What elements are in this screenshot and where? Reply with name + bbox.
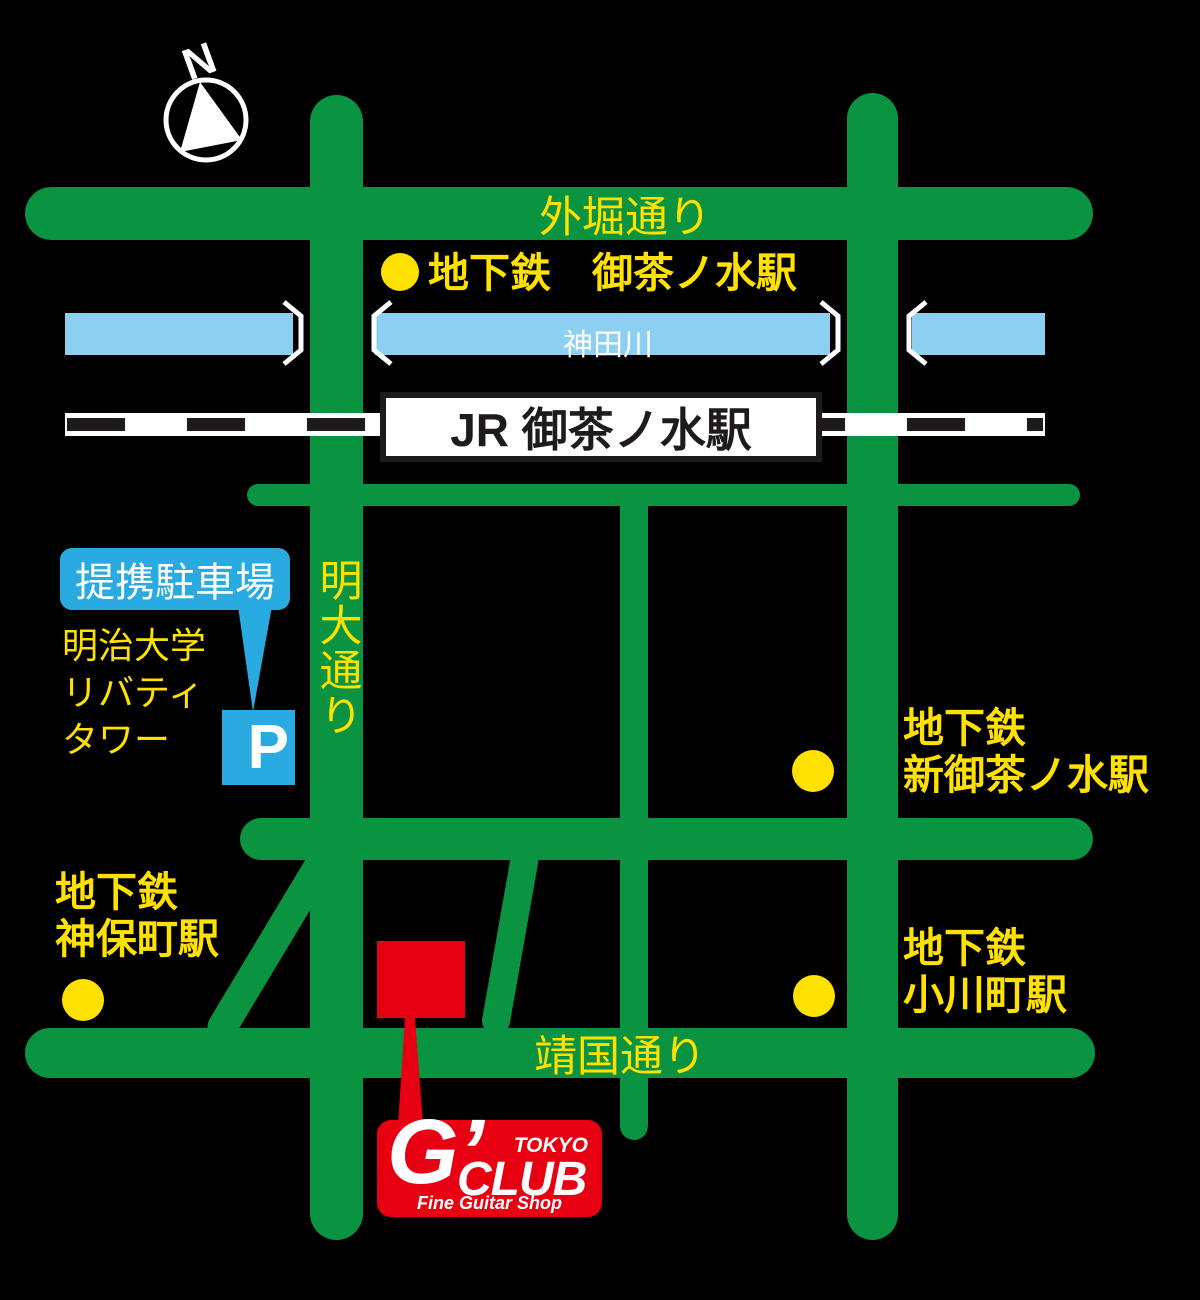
metro-ochanomizu-dot (381, 253, 419, 291)
road-diagonal-middle (480, 835, 542, 1037)
metro-ogawamachi-dot (793, 975, 835, 1017)
gclub-logo: G’ TOKYO CLUB Fine Guitar Shop (377, 1120, 602, 1217)
station-line: 新御茶ノ水駅 (903, 752, 1149, 799)
station-line: 地下鉄 (55, 869, 219, 916)
building-line: リバティ (62, 669, 206, 716)
jr-ochanomizu-station-box: JR 御茶ノ水駅 (380, 392, 822, 462)
kanda-river-segment-left (65, 313, 293, 355)
sotobori-dori-label: 外堀通り (450, 187, 800, 240)
metro-ogawamachi-label: 地下鉄 小川町駅 (903, 925, 1067, 1019)
station-line: 地下鉄 (903, 925, 1067, 972)
kanda-river-label: 神田川 (563, 320, 653, 364)
building-line: 明治大学 (62, 622, 206, 669)
kanda-river-segment-right (912, 313, 1045, 355)
meidai-dori-label: 明大通り (311, 540, 363, 755)
access-map: N 神田川 JR 御茶ノ水駅 外堀通り 明大通り 靖国通り 地下鉄 御茶ノ水駅 … (0, 0, 1200, 1300)
bridge-mark-icon (282, 300, 304, 366)
metro-jimbocho-dot (62, 979, 104, 1021)
yasukuni-dori-label: 靖国通り (490, 1030, 750, 1076)
bridge-mark-icon (371, 300, 393, 366)
building-line: タワー (62, 716, 206, 763)
shop-location-marker (377, 941, 465, 1018)
metro-shin-ochanomizu-dot (792, 750, 834, 792)
partner-parking-label: 提携駐車場 (60, 548, 290, 610)
road-middle-cross (240, 818, 1093, 860)
parking-p-icon: P (222, 710, 295, 785)
station-line: 神保町駅 (55, 916, 219, 963)
metro-shin-ochanomizu-label: 地下鉄 新御茶ノ水駅 (903, 705, 1149, 799)
station-line: 小川町駅 (903, 972, 1067, 1019)
bridge-mark-icon (906, 300, 928, 366)
gclub-logo-tagline: Fine Guitar Shop (377, 1194, 602, 1212)
bridge-mark-icon (819, 300, 841, 366)
meiji-university-building-label: 明治大学 リバティ タワー (62, 622, 206, 763)
metro-jimbocho-label: 地下鉄 神保町駅 (55, 869, 219, 963)
station-line: 地下鉄 (903, 705, 1149, 752)
compass-north-icon: N (150, 30, 270, 170)
metro-ochanomizu-label: 地下鉄 御茶ノ水駅 (428, 250, 797, 297)
road-middle-thin (247, 484, 1080, 506)
parking-pointer (230, 605, 280, 715)
